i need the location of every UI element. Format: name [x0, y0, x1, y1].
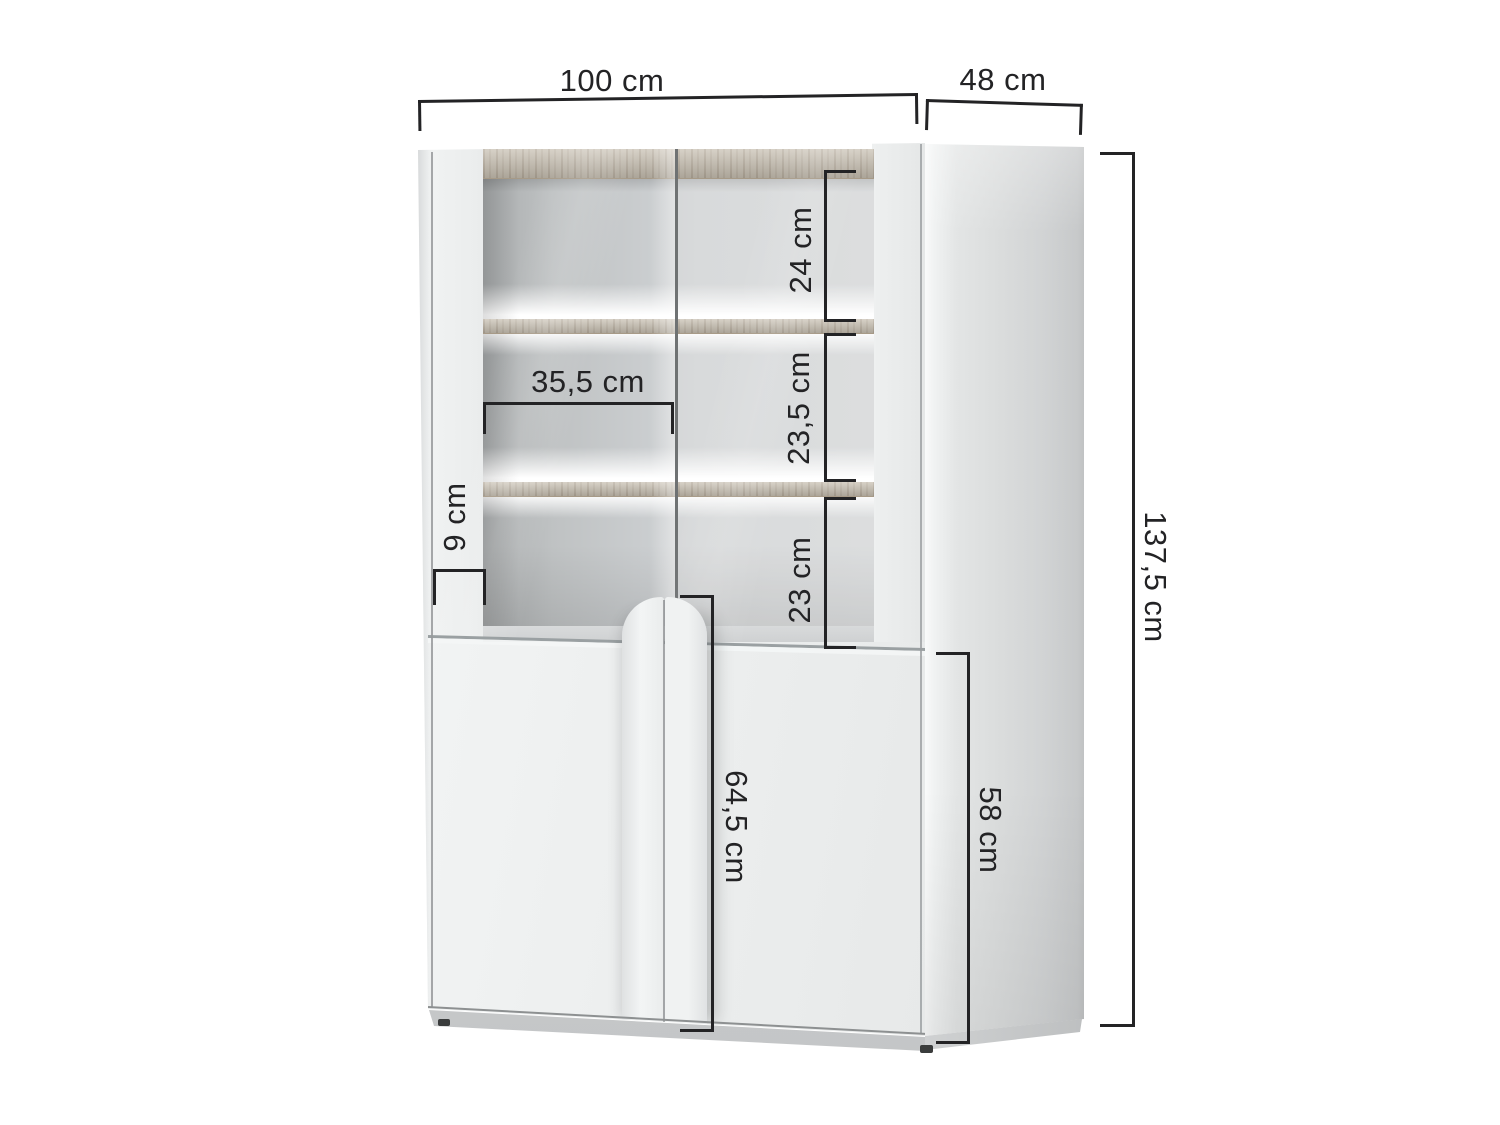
- arched-handle-left: [622, 597, 664, 1023]
- dim-bracket-bottom-rail: [433, 569, 486, 605]
- dim-line-overall-depth: [925, 99, 1083, 138]
- dim-label-overall-height: 137,5 cm: [1137, 511, 1173, 643]
- dim-label-door-height: 64,5 cm: [718, 770, 754, 884]
- dim-label-bottom-rail: 9 cm: [437, 482, 473, 551]
- dim-label-top-shelf-space: 24 cm: [783, 207, 819, 294]
- dim-label-overall-width: 100 cm: [560, 63, 665, 99]
- dim-line-bottom-shelf-space: [824, 497, 856, 649]
- dim-line-middle-shelf-space: [824, 333, 856, 482]
- handle-gap-line: [663, 600, 665, 1023]
- dim-line-overall-width: [418, 93, 918, 134]
- dim-line-inner-width: [483, 402, 674, 437]
- dim-line-door-height: [680, 595, 714, 1032]
- right-corner-line: [920, 144, 922, 1034]
- dim-label-middle-shelf-space: 23,5 cm: [781, 351, 817, 465]
- dim-label-bottom-shelf-space: 23 cm: [782, 537, 818, 624]
- dim-label-lower-cabinet-height: 58 cm: [972, 787, 1008, 874]
- dim-label-inner-width: 35,5 cm: [531, 364, 645, 400]
- cabinet-foot-right: [920, 1045, 933, 1053]
- dim-line-top-shelf-space: [824, 170, 856, 322]
- furniture-diagram: 100 cm 48 cm 137,5 cm 24 cm 23,5 cm 23 c…: [0, 0, 1500, 1125]
- cabinet-front: [0, 0, 1500, 1125]
- dim-line-lower-cabinet-height: [936, 652, 970, 1044]
- dim-line-overall-height: [1100, 152, 1135, 1027]
- cabinet-foot-left: [438, 1019, 450, 1026]
- dim-label-overall-depth: 48 cm: [960, 62, 1047, 98]
